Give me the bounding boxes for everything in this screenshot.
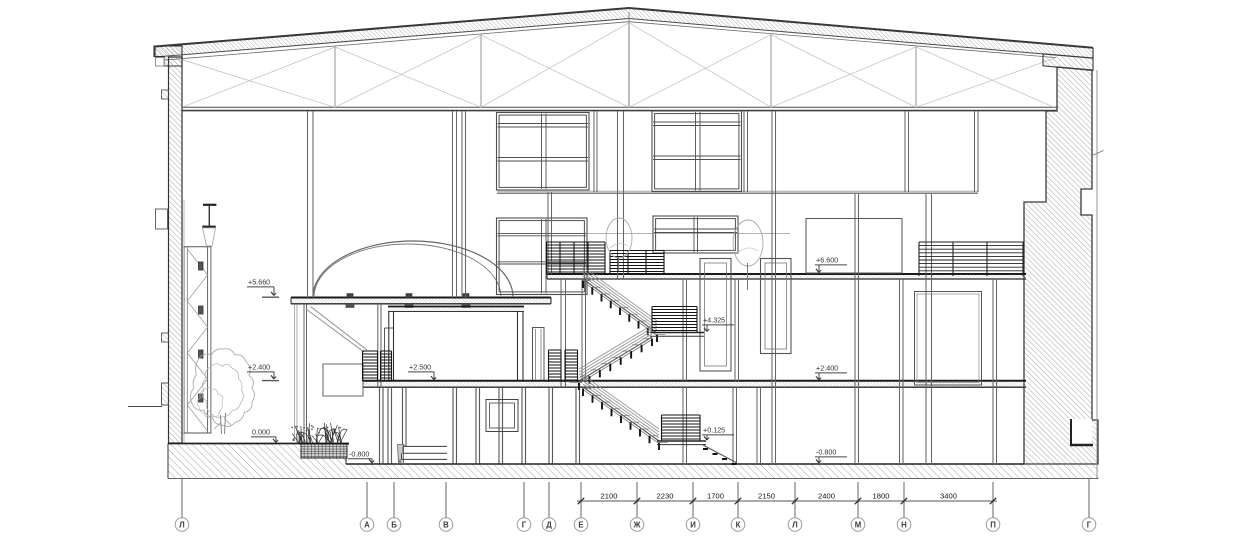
svg-text:3400: 3400	[940, 491, 957, 500]
svg-text:В: В	[443, 520, 449, 529]
svg-text:Д: Д	[546, 520, 552, 529]
svg-text:+2.500: +2.500	[409, 363, 431, 372]
svg-text:0.000: 0.000	[252, 428, 270, 437]
svg-text:+0.125: +0.125	[703, 426, 725, 435]
svg-text:-0.800: -0.800	[349, 449, 369, 458]
svg-text:Г: Г	[1087, 520, 1092, 529]
svg-text:Ж: Ж	[632, 520, 641, 529]
svg-text:Н: Н	[901, 520, 907, 529]
svg-text:+4.325: +4.325	[703, 316, 725, 325]
svg-text:+2.400: +2.400	[248, 363, 270, 372]
svg-text:А: А	[364, 520, 370, 529]
svg-text:2150: 2150	[758, 491, 775, 500]
svg-text:Б: Б	[391, 520, 397, 529]
svg-text:2230: 2230	[657, 491, 674, 500]
svg-text:Г: Г	[522, 520, 527, 529]
svg-text:2400: 2400	[818, 491, 835, 500]
svg-text:2100: 2100	[601, 491, 618, 500]
svg-text:-0.800: -0.800	[816, 448, 836, 457]
svg-text:+5.660: +5.660	[248, 278, 270, 287]
svg-text:Л: Л	[179, 520, 184, 529]
svg-text:Е: Е	[578, 520, 583, 529]
svg-text:М: М	[855, 520, 862, 529]
svg-text:+6.600: +6.600	[816, 256, 838, 265]
svg-text:П: П	[990, 520, 996, 529]
svg-text:+2.400: +2.400	[816, 364, 838, 373]
svg-text:Л: Л	[792, 520, 797, 529]
svg-text:1800: 1800	[873, 491, 890, 500]
svg-text:1700: 1700	[707, 491, 724, 500]
svg-text:И: И	[690, 520, 696, 529]
svg-text:К: К	[736, 520, 741, 529]
